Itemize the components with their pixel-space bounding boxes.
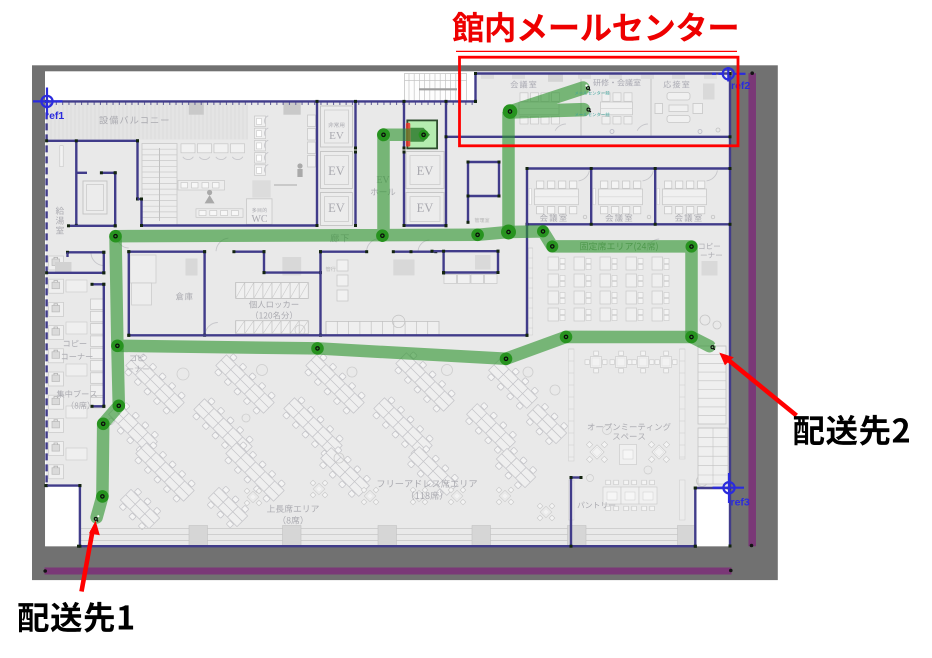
svg-text:WC: WC — [251, 214, 267, 225]
svg-text:EV: EV — [329, 130, 344, 142]
svg-text:EV: EV — [328, 201, 345, 215]
svg-text:ref1: ref1 — [45, 110, 64, 122]
svg-text:ref3: ref3 — [731, 497, 750, 509]
svg-text:EV: EV — [417, 201, 434, 215]
svg-text:ref2: ref2 — [731, 80, 750, 92]
svg-text:EV: EV — [417, 164, 434, 178]
svg-text:EV: EV — [328, 164, 345, 178]
